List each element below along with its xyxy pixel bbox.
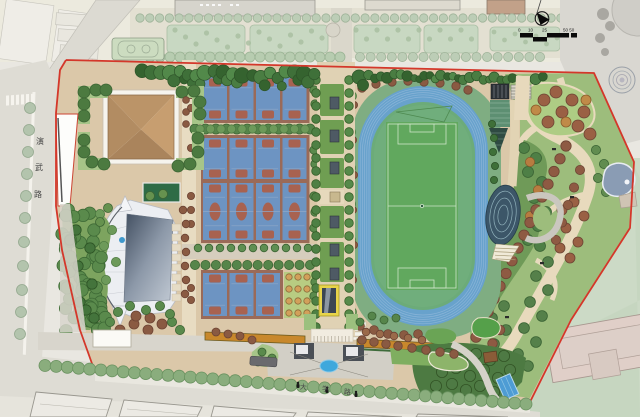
svg-text:10: 10 — [528, 28, 534, 33]
svg-text:演: 演 — [36, 136, 44, 146]
svg-text:50 50: 50 50 — [563, 28, 575, 33]
svg-text:路: 路 — [34, 189, 42, 199]
svg-text:武: 武 — [35, 162, 43, 172]
svg-text:25: 25 — [542, 28, 548, 33]
